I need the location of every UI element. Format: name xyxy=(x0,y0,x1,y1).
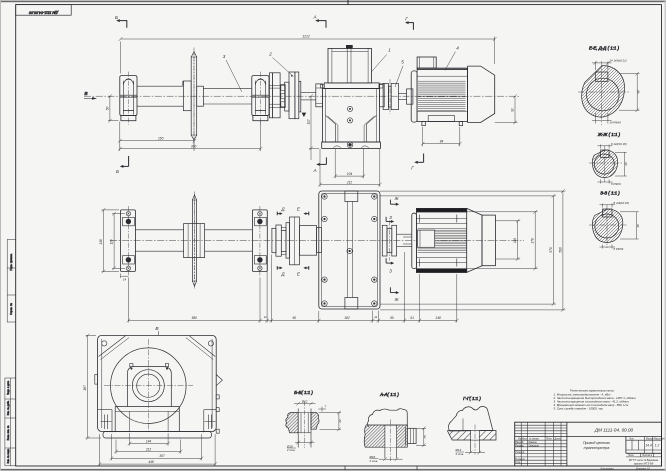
svg-text:Д: Д xyxy=(280,207,284,212)
svg-text:84: 84 xyxy=(440,139,444,143)
svg-text:8 P9/h9: 8 P9/h9 xyxy=(611,182,621,186)
svg-text:Ø22: Ø22 xyxy=(301,399,308,403)
svg-text:112: 112 xyxy=(306,119,310,124)
svg-text:Е: Е xyxy=(297,272,300,277)
svg-text:92: 92 xyxy=(510,108,514,112)
svg-text:28: 28 xyxy=(624,162,628,167)
svg-text:2: 2 xyxy=(268,52,272,57)
svg-text:61: 61 xyxy=(410,316,414,320)
svg-text:144: 144 xyxy=(146,439,152,443)
svg-text:Орешкин: Орешкин xyxy=(529,444,540,447)
svg-text:группа МТ3-69: группа МТ3-69 xyxy=(634,462,654,466)
svg-text:116: 116 xyxy=(110,239,114,244)
svg-text:Лит.: Лит. xyxy=(628,438,635,440)
svg-text:8 P9/h9: 8 P9/h9 xyxy=(614,247,624,251)
svg-text:448: 448 xyxy=(148,460,154,464)
svg-text:Подп.: Подп. xyxy=(546,438,552,441)
svg-text:Е: Е xyxy=(297,207,300,212)
svg-text:З: З xyxy=(389,215,392,220)
svg-text:212: 212 xyxy=(346,180,353,184)
svg-text:8 Js9(±0.18): 8 Js9(±0.18) xyxy=(614,201,630,205)
svg-text:7: 7 xyxy=(325,405,327,409)
svg-text:В: В xyxy=(155,326,159,332)
svg-text:4 отв.: 4 отв. xyxy=(370,459,379,463)
svg-text:50: 50 xyxy=(105,107,109,111)
svg-text:Формат А1: Формат А1 xyxy=(636,466,651,470)
svg-text:Б-Б( 1:1 ): Б-Б( 1:1 ) xyxy=(294,390,313,395)
svg-text:182: 182 xyxy=(344,316,350,320)
svg-text:Ж: Ж xyxy=(394,196,400,201)
svg-text:300: 300 xyxy=(191,144,197,148)
svg-text:Масса: Масса xyxy=(646,438,654,440)
svg-text:Г-Г( 1:1 ): Г-Г( 1:1 ) xyxy=(463,396,481,401)
svg-text:4 отв.: 4 отв. xyxy=(456,452,465,456)
svg-text:Ж-Ж ( 1:1 ): Ж-Ж ( 1:1 ) xyxy=(597,132,621,137)
svg-text:Е-Е, Д-Д ( 1:1 ): Е-Е, Д-Д ( 1:1 ) xyxy=(589,46,620,51)
svg-text:11: 11 xyxy=(374,315,377,319)
svg-text:А: А xyxy=(312,168,316,173)
svg-text:транспортера: транспортера xyxy=(584,446,610,450)
svg-text:Г: Г xyxy=(405,17,408,22)
svg-text:22: 22 xyxy=(338,419,342,424)
svg-text:11: 11 xyxy=(264,315,267,319)
svg-text:Г: Г xyxy=(411,166,414,171)
svg-text:Б: Б xyxy=(115,15,118,20)
svg-text:5. Срок службы передач - 10000: 5. Срок службы передач - 10000, час xyxy=(554,407,604,411)
svg-text:Т.контр.: Т.контр. xyxy=(515,451,525,454)
svg-text:Ж: Ж xyxy=(394,297,400,302)
svg-text:212: 212 xyxy=(145,447,152,451)
svg-text:Утв.: Утв. xyxy=(515,461,521,464)
svg-text:А-А( 1:1 ): А-А( 1:1 ) xyxy=(379,392,399,397)
svg-text:З: З xyxy=(389,269,392,274)
svg-text:14.4: 14.4 xyxy=(645,444,651,448)
svg-text:48: 48 xyxy=(636,90,640,94)
svg-text:150: 150 xyxy=(158,136,164,140)
svg-text:8 Js9(±0.18): 8 Js9(±0.18) xyxy=(611,142,627,146)
svg-text:Инв. № подл.: Инв. № подл. xyxy=(7,448,10,463)
svg-text:1:2: 1:2 xyxy=(655,444,660,448)
svg-text:580: 580 xyxy=(192,316,198,320)
svg-text:№ докум.: № докум. xyxy=(529,438,539,441)
svg-text:Д: Д xyxy=(280,272,284,277)
svg-text:580: 580 xyxy=(558,247,562,253)
svg-text:Справ. №: Справ. № xyxy=(9,303,13,315)
svg-text:178: 178 xyxy=(531,238,535,244)
svg-text:Инв. № дубл.: Инв. № дубл. xyxy=(7,400,10,415)
svg-text:116: 116 xyxy=(513,238,517,243)
svg-text:2 отв.: 2 отв. xyxy=(286,448,296,452)
svg-text:Взам. инв. №: Взам. инв. № xyxy=(7,425,10,440)
svg-text:138: 138 xyxy=(99,239,103,245)
svg-text:З-З ( 1:1 ): З-З ( 1:1 ) xyxy=(600,191,620,196)
svg-text:ДМ 1111-04. 00.00: ДМ 1111-04. 00.00 xyxy=(594,427,634,432)
svg-text:104: 104 xyxy=(347,172,353,176)
svg-text:Перв. примен.: Перв. примен. xyxy=(9,253,13,271)
svg-text:Провер.: Провер. xyxy=(515,444,524,447)
svg-text:5: 5 xyxy=(401,60,404,65)
svg-text:Б: Б xyxy=(116,169,119,174)
svg-text:367: 367 xyxy=(83,385,87,391)
svg-text:А: А xyxy=(312,15,316,20)
svg-text:Подп. и дата: Подп. и дата xyxy=(7,380,10,395)
svg-text:Дата: Дата xyxy=(554,439,562,441)
svg-text:570: 570 xyxy=(549,247,553,253)
svg-text:75: 75 xyxy=(423,435,427,439)
svg-text:38: 38 xyxy=(636,224,640,228)
svg-text:90: 90 xyxy=(293,316,297,320)
svg-text:Привод цепного: Привод цепного xyxy=(583,441,610,445)
svg-text:3: 3 xyxy=(223,54,226,59)
svg-text:Копировал: Копировал xyxy=(601,466,614,470)
svg-text:14 P9/h9: 14 P9/h9 xyxy=(610,121,622,125)
svg-text:1: 1 xyxy=(388,48,391,53)
svg-text:Масштаб: Масштаб xyxy=(654,438,665,440)
svg-text:1212: 1212 xyxy=(302,35,310,39)
svg-text:ДМ 1111-04.00.00: ДМ 1111-04.00.00 xyxy=(29,11,59,15)
svg-text:4: 4 xyxy=(456,46,459,51)
svg-text:90: 90 xyxy=(390,316,394,320)
svg-text:148: 148 xyxy=(435,316,441,320)
svg-text:14 Js9(±0.21): 14 Js9(±0.21) xyxy=(610,59,627,63)
svg-text:14: 14 xyxy=(123,278,127,282)
svg-text:307: 307 xyxy=(159,454,165,458)
